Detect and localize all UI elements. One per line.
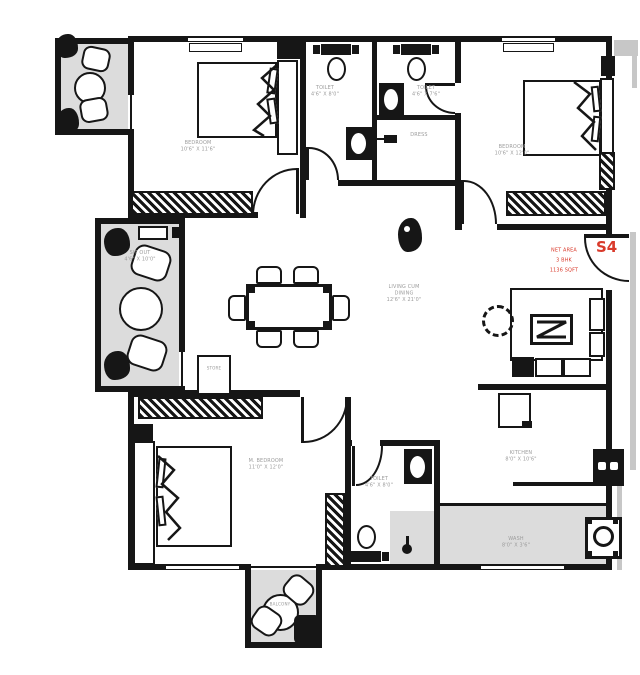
sofa-cushion: [563, 358, 591, 377]
wall: [497, 224, 612, 230]
door-arc: [464, 180, 497, 224]
shower-stem: [406, 536, 409, 545]
room-label-toilet-top-right: TOILET4'6" X 7'6": [406, 85, 447, 98]
room-label-wash: WASH8'0" X 3'6": [491, 536, 540, 549]
exterior-shadow: [630, 232, 636, 470]
wc-side-block: [393, 45, 400, 54]
sink-bowl: [598, 462, 606, 470]
room-label-dress: DRESS: [400, 132, 438, 138]
shower-icon: [402, 544, 412, 554]
bench-icon: [138, 226, 168, 240]
wash-basin-circle: [593, 526, 614, 547]
wall: [455, 224, 462, 230]
door-handle-stem: [377, 138, 385, 140]
room-label-living: LIVING CUMDINING12'6" X 21'0": [370, 284, 439, 303]
room-label-sitout: SIT OUT4'6" X 10'0": [115, 250, 166, 263]
room-label-kitchen: KITCHEN8'0" X 10'6": [496, 450, 547, 463]
sofa-cushion: [589, 298, 605, 331]
wall: [345, 440, 352, 446]
wash-corner: [587, 519, 592, 524]
wardrobe-hatch: [131, 191, 253, 215]
table-corner: [323, 287, 329, 293]
table-corner: [323, 321, 329, 327]
plant-highlight: [404, 226, 410, 232]
dining-table-icon: [246, 284, 332, 330]
wall: [95, 218, 101, 392]
wc-side-block: [382, 552, 389, 561]
nightstand-icon: [601, 56, 615, 76]
plant-icon: [482, 305, 514, 337]
nightstand-icon: [131, 424, 153, 441]
wall: [245, 570, 251, 648]
counter-divider: [440, 503, 612, 506]
wardrobe-hatch: [599, 152, 615, 190]
door-arc: [309, 147, 339, 180]
plant-icon: [57, 108, 79, 134]
exterior-shadow: [614, 40, 638, 56]
wash-corner: [613, 551, 618, 556]
wc-cistern-icon: [351, 551, 381, 562]
sofa-cushion: [589, 332, 605, 357]
window-sill: [189, 43, 242, 52]
sofa-corner-unit: [512, 357, 534, 377]
quilt-fold-icon: [248, 62, 280, 138]
sliding-door-line: [130, 95, 132, 129]
room-label-bedroom-top-left: BEDROOM10'6" X 11'6": [168, 140, 227, 153]
window: [187, 37, 244, 42]
chair-icon: [332, 295, 350, 321]
plant-icon: [398, 218, 422, 252]
window: [480, 565, 565, 570]
room-label-bedroom-bottom: M. BEDROOM11'0" X 12'0": [233, 458, 299, 471]
store-box: [197, 355, 231, 395]
wall: [179, 218, 185, 352]
unit-label: S4: [596, 238, 628, 256]
balcony-table-icon: [119, 287, 163, 331]
wc-cistern-icon: [321, 44, 351, 55]
window: [501, 37, 556, 42]
sink-bowl: [610, 462, 618, 470]
wc-side-block: [313, 45, 320, 54]
plant-icon: [56, 34, 78, 58]
wc-side-block: [343, 552, 350, 561]
washbasin-bowl: [351, 133, 366, 154]
wall: [338, 180, 460, 186]
window: [165, 565, 240, 570]
bed-headboard-icon: [277, 60, 298, 155]
wc-cistern-icon: [401, 44, 431, 55]
wall: [345, 397, 351, 570]
chair-icon: [256, 266, 282, 284]
door-arc: [304, 397, 348, 443]
chair-icon: [293, 330, 319, 348]
wardrobe-hatch: [325, 493, 345, 567]
washbasin-bowl: [410, 456, 425, 478]
wall: [316, 564, 612, 570]
plant-icon: [294, 615, 320, 644]
room-label-balcony-bottom: BALCONY: [262, 602, 298, 607]
bed-headboard-icon: [133, 441, 155, 565]
wardrobe-hatch: [138, 397, 263, 419]
wall: [300, 36, 306, 218]
wc-side-block: [352, 45, 359, 54]
fridge-notch: [522, 421, 532, 428]
door-arc: [252, 168, 297, 215]
window-sill: [503, 43, 554, 52]
floor-plan: BEDROOM10'6" X 11'6" TOILET4'6" X 8'0" T…: [0, 0, 640, 675]
wall: [380, 440, 440, 446]
wardrobe-hatch: [506, 191, 606, 216]
room-label-store: STORE: [200, 366, 228, 371]
wc-bowl-icon: [327, 57, 346, 81]
shower-area: [390, 511, 434, 568]
wall: [372, 36, 377, 185]
washbasin-bowl: [384, 89, 398, 110]
chair-icon: [293, 266, 319, 284]
wash-corner: [613, 519, 618, 524]
nightstand-icon: [277, 40, 300, 59]
wc-bowl-icon: [357, 525, 376, 549]
wall: [95, 218, 185, 224]
bed-headboard-icon: [600, 78, 614, 154]
room-label-toilet-bottom: TOILET4'6" X 8'0": [360, 476, 398, 489]
wash-corner: [587, 551, 592, 556]
quilt-fold-icon: [156, 450, 186, 542]
chair-icon: [256, 330, 282, 348]
wall: [478, 384, 612, 390]
door-handle-icon: [384, 135, 397, 143]
sliding-door-line: [251, 566, 316, 568]
planter-box-icon: [172, 227, 183, 238]
sofa-cushion: [535, 358, 563, 377]
area-note: NET AREA3 BHK1136 SQFT: [539, 246, 588, 276]
wall: [455, 36, 461, 83]
sliding-door-line: [181, 352, 183, 386]
table-corner: [249, 321, 255, 327]
exterior-shadow: [632, 56, 637, 88]
wc-bowl-icon: [407, 57, 426, 81]
chair-icon: [228, 295, 246, 321]
room-label-toilet-top-left: TOILET4'6" X 8'0": [305, 85, 346, 98]
door-leaf: [352, 446, 355, 486]
table-corner: [249, 287, 255, 293]
z-rug-icon: [533, 317, 570, 342]
quilt-fold-icon: [572, 80, 602, 156]
wc-side-block: [432, 45, 439, 54]
room-label-bedroom-top-right: BEDROOM10'6" X 12'0": [484, 144, 540, 157]
